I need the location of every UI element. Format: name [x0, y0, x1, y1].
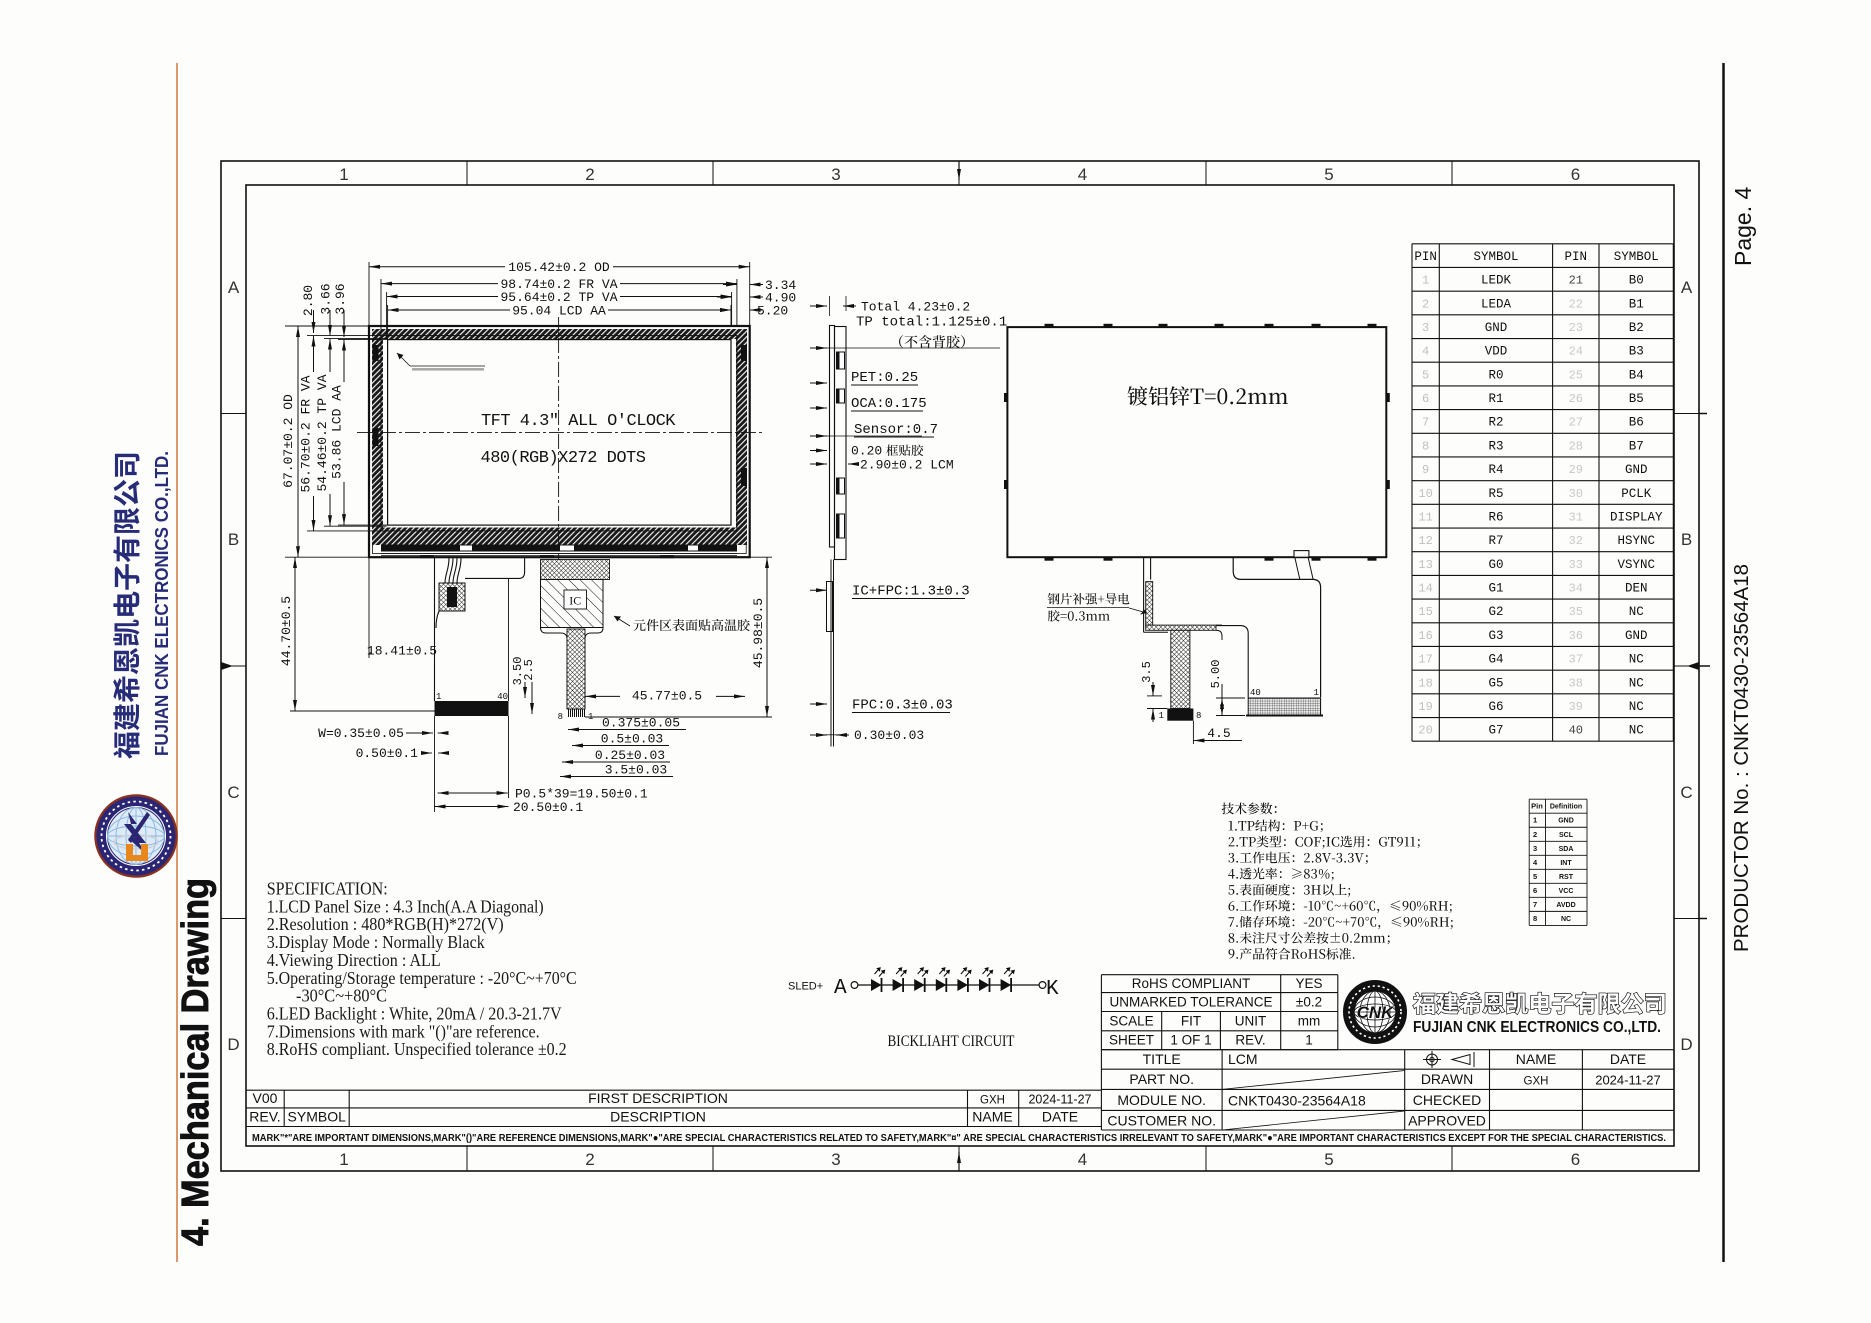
svg-text:FUJIAN CNK ELECTRONICS CO.,LTD: FUJIAN CNK ELECTRONICS CO.,LTD. — [152, 451, 172, 756]
svg-text:1: 1 — [436, 692, 441, 702]
svg-text:C: C — [1680, 783, 1692, 802]
svg-text:37: 37 — [1569, 653, 1583, 667]
svg-text:3: 3 — [831, 1150, 840, 1169]
svg-text:1: 1 — [1305, 1033, 1313, 1048]
svg-text:VDD: VDD — [1485, 345, 1508, 359]
svg-text:TITLE: TITLE — [1143, 1051, 1181, 1067]
svg-text:DATE: DATE — [1610, 1051, 1646, 1067]
svg-text:IC: IC — [569, 594, 581, 608]
svg-text:BICKLIAHT CIRCUIT: BICKLIAHT CIRCUIT — [888, 1033, 1015, 1050]
svg-text:8.RoHS compliant. Unspecified: 8.RoHS compliant. Unspecified tolerance … — [267, 1039, 567, 1059]
svg-text:MARK"*"ARE IMPORTANT DIMENSI: MARK"*"ARE IMPORTANT DIMENSIONS,MARK"()"… — [252, 1132, 1666, 1144]
svg-text:LEDA: LEDA — [1481, 297, 1512, 311]
svg-text:B2: B2 — [1629, 321, 1644, 335]
svg-text:FIT: FIT — [1181, 1014, 1201, 1029]
svg-text:GXH: GXH — [980, 1095, 1005, 1107]
svg-text:B: B — [1681, 530, 1692, 549]
svg-text:A: A — [1681, 278, 1693, 297]
svg-text:DRAWN: DRAWN — [1421, 1071, 1473, 1087]
svg-text:B0: B0 — [1629, 274, 1644, 288]
svg-text:NC: NC — [1629, 653, 1644, 667]
svg-text:TFT 4.3" ALL O'CLOCK: TFT 4.3" ALL O'CLOCK — [481, 412, 676, 431]
svg-text:R7: R7 — [1488, 534, 1503, 548]
svg-text:YES: YES — [1295, 976, 1322, 991]
svg-text:UNIT: UNIT — [1235, 1014, 1267, 1029]
svg-text:9: 9 — [1422, 463, 1429, 477]
svg-text:CNK: CNK — [1357, 1003, 1396, 1022]
svg-text:4: 4 — [1422, 345, 1429, 359]
svg-text:32: 32 — [1569, 534, 1583, 548]
svg-text:39: 39 — [1569, 700, 1583, 714]
svg-text:10: 10 — [1418, 487, 1432, 501]
svg-text:RoHS COMPLIANT: RoHS COMPLIANT — [1132, 976, 1251, 991]
svg-text:3.96: 3.96 — [333, 283, 348, 314]
svg-text:3: 3 — [831, 165, 840, 184]
svg-text:4.5: 4.5 — [1207, 726, 1230, 741]
svg-text:28: 28 — [1569, 439, 1583, 453]
svg-text:1: 1 — [1159, 711, 1164, 721]
svg-text:54.46±0.2 TP VA: 54.46±0.2 TP VA — [315, 374, 330, 491]
svg-text:G7: G7 — [1488, 724, 1503, 738]
svg-text:SCALE: SCALE — [1109, 1014, 1153, 1029]
svg-text:31: 31 — [1569, 510, 1583, 524]
svg-text:VCC: VCC — [1559, 888, 1574, 895]
svg-text:G1: G1 — [1488, 582, 1503, 596]
svg-text:G0: G0 — [1488, 558, 1503, 572]
svg-text:A: A — [228, 278, 240, 297]
svg-text:0.25±0.03: 0.25±0.03 — [595, 748, 665, 763]
svg-text:40: 40 — [1250, 688, 1261, 698]
svg-text:0.50±0.1: 0.50±0.1 — [356, 746, 419, 761]
svg-text:27: 27 — [1569, 416, 1583, 430]
svg-text:mm: mm — [1298, 1014, 1321, 1029]
svg-text:NC: NC — [1629, 605, 1644, 619]
svg-text:SCL: SCL — [1559, 832, 1574, 839]
svg-text:B7: B7 — [1629, 439, 1644, 453]
svg-text:R6: R6 — [1488, 510, 1503, 524]
svg-text:22: 22 — [1569, 297, 1583, 311]
svg-text:SLED+: SLED+ — [788, 981, 823, 993]
svg-text:MODULE NO.: MODULE NO. — [1117, 1092, 1206, 1108]
svg-text:D: D — [227, 1035, 239, 1054]
svg-text:18: 18 — [1418, 676, 1432, 690]
svg-text:44.70±0.5: 44.70±0.5 — [279, 596, 294, 666]
svg-text:D: D — [1680, 1035, 1692, 1054]
svg-text:PRODUCTOR No. : CNKT0430-2356: PRODUCTOR No. : CNKT0430-23564A18 — [1731, 564, 1753, 952]
svg-text:GND: GND — [1625, 463, 1648, 477]
svg-text:5: 5 — [1422, 368, 1429, 382]
svg-text:6: 6 — [1422, 392, 1429, 406]
svg-text:R4: R4 — [1488, 463, 1503, 477]
svg-text:3.66: 3.66 — [319, 283, 334, 314]
svg-text:R5: R5 — [1488, 487, 1503, 501]
svg-text:PCLK: PCLK — [1621, 487, 1652, 501]
svg-text:3.5±0.03: 3.5±0.03 — [605, 763, 667, 778]
svg-text:45.77±0.5: 45.77±0.5 — [632, 689, 702, 704]
svg-text:Sensor:0.7: Sensor:0.7 — [854, 422, 938, 438]
svg-text:CHECKED: CHECKED — [1413, 1092, 1481, 1108]
svg-text:Definition: Definition — [1550, 804, 1582, 811]
svg-text:14: 14 — [1418, 582, 1432, 596]
svg-text:26: 26 — [1569, 392, 1583, 406]
svg-text:5: 5 — [1324, 1150, 1333, 1169]
svg-text:17: 17 — [1418, 653, 1432, 667]
svg-text:LEDK: LEDK — [1481, 274, 1512, 288]
svg-text:2024-11-27: 2024-11-27 — [1595, 1073, 1661, 1088]
svg-text:8: 8 — [1422, 439, 1429, 453]
svg-text:R0: R0 — [1488, 368, 1503, 382]
svg-text:B5: B5 — [1629, 392, 1644, 406]
svg-text:25: 25 — [1569, 368, 1583, 382]
svg-text:5: 5 — [1324, 165, 1333, 184]
svg-text:W=0.35±0.05: W=0.35±0.05 — [318, 726, 404, 741]
svg-text:G4: G4 — [1488, 653, 1503, 667]
svg-text:B: B — [228, 530, 239, 549]
svg-text:REV.: REV. — [249, 1109, 280, 1125]
svg-text:19: 19 — [1418, 700, 1432, 714]
svg-text:NAME: NAME — [972, 1109, 1012, 1125]
svg-text:3: 3 — [1422, 321, 1429, 335]
svg-text:24: 24 — [1569, 345, 1583, 359]
svg-text:1: 1 — [339, 1150, 348, 1169]
svg-text:Page. 4: Page. 4 — [1730, 187, 1756, 266]
svg-text:Total 4.23±0.2: Total 4.23±0.2 — [861, 300, 970, 315]
svg-text:AVDD: AVDD — [1556, 902, 1575, 909]
svg-text:PART NO.: PART NO. — [1129, 1071, 1194, 1087]
svg-text:V00: V00 — [253, 1090, 278, 1106]
svg-text:34: 34 — [1569, 582, 1583, 596]
svg-text:UNMARKED TOLERANCE: UNMARKED TOLERANCE — [1109, 995, 1272, 1010]
svg-text:40: 40 — [1569, 724, 1583, 738]
svg-text:G3: G3 — [1488, 629, 1503, 643]
svg-text:8: 8 — [1533, 914, 1537, 923]
svg-text:3.5: 3.5 — [1140, 661, 1154, 683]
svg-text:DESCRIPTION: DESCRIPTION — [610, 1109, 706, 1125]
svg-text:105.42±0.2 OD: 105.42±0.2 OD — [508, 260, 610, 275]
svg-text:2: 2 — [1533, 830, 1537, 839]
svg-text:20: 20 — [1418, 724, 1432, 738]
svg-text:DEN: DEN — [1625, 582, 1648, 596]
svg-text:REV.: REV. — [1235, 1033, 1265, 1048]
svg-text:5.00: 5.00 — [1209, 660, 1223, 689]
svg-text:23: 23 — [1569, 321, 1583, 335]
svg-text:OCA:0.175: OCA:0.175 — [851, 396, 927, 412]
svg-text:45.98±0.5: 45.98±0.5 — [751, 598, 766, 668]
svg-text:95.04 LCD AA: 95.04 LCD AA — [512, 304, 606, 319]
svg-text:GXH: GXH — [1524, 1076, 1549, 1088]
svg-text:GND: GND — [1485, 321, 1508, 335]
svg-text:INT: INT — [1560, 860, 1572, 867]
svg-text:21: 21 — [1569, 274, 1583, 288]
svg-text:29: 29 — [1569, 463, 1583, 477]
svg-text:SYMBOL: SYMBOL — [1473, 250, 1518, 264]
svg-text:40: 40 — [497, 692, 508, 702]
svg-text:CNKT0430-23564A18: CNKT0430-23564A18 — [1228, 1093, 1366, 1109]
svg-text:B3: B3 — [1629, 345, 1644, 359]
svg-text:G5: G5 — [1488, 676, 1503, 690]
svg-text:4: 4 — [1078, 165, 1087, 184]
svg-text:15: 15 — [1418, 605, 1432, 619]
svg-text:2.90±0.2 LCM: 2.90±0.2 LCM — [860, 458, 954, 473]
svg-text:C: C — [227, 783, 239, 802]
svg-text:5.20: 5.20 — [757, 304, 788, 319]
svg-text:38: 38 — [1569, 676, 1583, 690]
svg-text:FIRST DESCRIPTION: FIRST DESCRIPTION — [588, 1090, 728, 1106]
svg-text:G2: G2 — [1488, 605, 1503, 619]
svg-text:18.41±0.5: 18.41±0.5 — [367, 644, 437, 659]
svg-text:1: 1 — [1422, 274, 1429, 288]
svg-text:0.375±0.05: 0.375±0.05 — [602, 716, 680, 731]
svg-text:0.5±0.03: 0.5±0.03 — [601, 732, 663, 747]
svg-text:480(RGB)X272 DOTS: 480(RGB)X272 DOTS — [481, 449, 646, 468]
svg-text:53.86 LCD AA: 53.86 LCD AA — [330, 385, 345, 479]
svg-text:SYMBOL: SYMBOL — [1614, 250, 1659, 264]
svg-text:±0.2: ±0.2 — [1296, 995, 1322, 1010]
svg-text:LCM: LCM — [1228, 1051, 1258, 1067]
svg-text:B6: B6 — [1629, 416, 1644, 430]
svg-text:0.20: 0.20 — [851, 444, 882, 459]
svg-text:20.50±0.1: 20.50±0.1 — [513, 800, 583, 815]
svg-text:67.07±0.2 OD: 67.07±0.2 OD — [281, 394, 296, 488]
svg-text:Pin: Pin — [1531, 802, 1543, 811]
svg-text:HSYNC: HSYNC — [1617, 534, 1655, 548]
svg-text:NC: NC — [1629, 724, 1644, 738]
svg-text:PIN: PIN — [1565, 250, 1588, 264]
svg-text:12: 12 — [1418, 534, 1432, 548]
svg-text:TP total:1.125±0.1: TP total:1.125±0.1 — [856, 315, 1007, 331]
svg-text:35: 35 — [1569, 605, 1583, 619]
svg-text:2: 2 — [1422, 297, 1429, 311]
svg-text:2: 2 — [585, 165, 594, 184]
svg-text:R1: R1 — [1488, 392, 1503, 406]
svg-text:IC+FPC:1.3±0.3: IC+FPC:1.3±0.3 — [852, 584, 970, 600]
svg-text:GND: GND — [1558, 818, 1574, 825]
svg-text:0.30±0.03: 0.30±0.03 — [854, 728, 924, 743]
svg-text:FPC:0.3±0.03: FPC:0.3±0.03 — [852, 698, 953, 714]
svg-text:3: 3 — [1533, 844, 1537, 853]
svg-text:8: 8 — [1196, 711, 1201, 721]
svg-text:13: 13 — [1418, 558, 1432, 572]
svg-text:56.70±0.2 FR VA: 56.70±0.2 FR VA — [299, 375, 314, 492]
svg-text:DISPLAY: DISPLAY — [1610, 510, 1663, 524]
svg-text:8: 8 — [558, 712, 563, 722]
svg-text:NC: NC — [1561, 916, 1571, 923]
svg-text:4: 4 — [1078, 1150, 1087, 1169]
svg-text:SYMBOL: SYMBOL — [288, 1109, 347, 1125]
svg-text:7: 7 — [1533, 900, 1537, 909]
svg-text:1: 1 — [339, 165, 348, 184]
svg-text:SHEET: SHEET — [1109, 1033, 1154, 1048]
svg-text:11: 11 — [1418, 510, 1432, 524]
svg-text:36: 36 — [1569, 629, 1583, 643]
svg-text:NC: NC — [1629, 676, 1644, 690]
svg-text:R2: R2 — [1488, 416, 1503, 430]
svg-text:B1: B1 — [1629, 297, 1644, 311]
svg-text:2024-11-27: 2024-11-27 — [1028, 1093, 1091, 1107]
svg-text:2.5: 2.5 — [522, 659, 536, 681]
svg-text:CUSTOMER NO.: CUSTOMER NO. — [1107, 1113, 1216, 1129]
svg-text:NAME: NAME — [1516, 1051, 1556, 1067]
svg-text:1 OF 1: 1 OF 1 — [1170, 1033, 1211, 1048]
svg-text:5: 5 — [1533, 872, 1537, 881]
svg-text:SDA: SDA — [1559, 846, 1574, 853]
svg-text:PET:0.25: PET:0.25 — [851, 370, 918, 386]
svg-text:G6: G6 — [1488, 700, 1503, 714]
svg-text:K: K — [1046, 978, 1059, 1001]
svg-text:R3: R3 — [1488, 439, 1503, 453]
svg-text:16: 16 — [1418, 629, 1432, 643]
svg-text:DATE: DATE — [1042, 1109, 1078, 1125]
svg-text:A: A — [834, 977, 847, 1000]
svg-text:6: 6 — [1533, 886, 1537, 895]
svg-text:NC: NC — [1629, 700, 1644, 714]
svg-text:B4: B4 — [1629, 368, 1644, 382]
svg-text:FUJIAN CNK ELECTRONICS CO.,LTD: FUJIAN CNK ELECTRONICS CO.,LTD. — [1413, 1019, 1661, 1036]
svg-text:GND: GND — [1625, 629, 1648, 643]
svg-text:4. Mechanical Drawing: 4. Mechanical Drawing — [175, 878, 217, 1246]
svg-text:2: 2 — [585, 1150, 594, 1169]
svg-text:6: 6 — [1571, 1150, 1580, 1169]
svg-text:VSYNC: VSYNC — [1617, 558, 1655, 572]
svg-text:30: 30 — [1569, 487, 1583, 501]
svg-text:6: 6 — [1571, 165, 1580, 184]
svg-text:PIN: PIN — [1414, 250, 1437, 264]
svg-text:7: 7 — [1422, 416, 1429, 430]
svg-text:33: 33 — [1569, 558, 1583, 572]
svg-text:RST: RST — [1559, 874, 1574, 881]
svg-text:1: 1 — [1314, 688, 1319, 698]
svg-text:1: 1 — [1533, 816, 1537, 825]
svg-text:APPROVED: APPROVED — [1408, 1113, 1486, 1129]
